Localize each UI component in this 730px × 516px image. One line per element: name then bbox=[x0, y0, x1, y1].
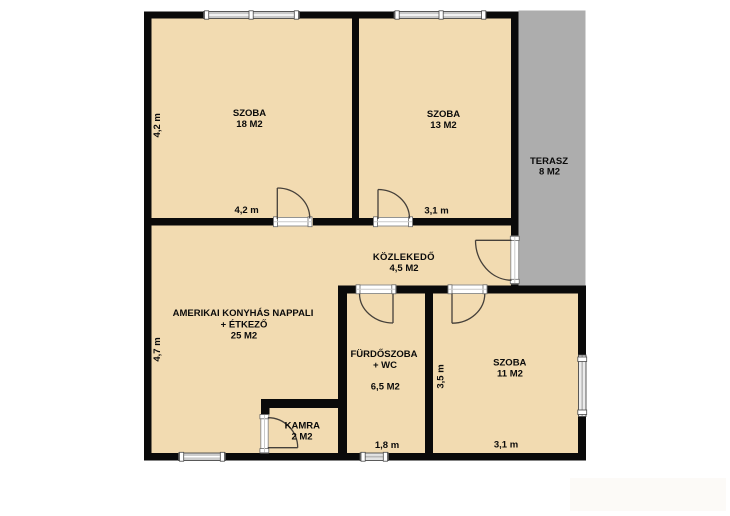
svg-text:KÖZLEKEDŐ: KÖZLEKEDŐ bbox=[373, 251, 435, 263]
svg-text:KAMRA: KAMRA bbox=[285, 421, 320, 432]
svg-text:4,2 m: 4,2 m bbox=[234, 205, 258, 216]
svg-text:SZOBA: SZOBA bbox=[427, 109, 460, 120]
svg-text:1,8 m: 1,8 m bbox=[375, 440, 399, 451]
svg-text:25 M2: 25 M2 bbox=[231, 331, 257, 342]
svg-text:FÜRDŐSZOBA: FÜRDŐSZOBA bbox=[350, 348, 417, 360]
svg-text:TERASZ: TERASZ bbox=[530, 156, 568, 167]
svg-text:3,1 m: 3,1 m bbox=[494, 440, 518, 451]
svg-text:4,2 m: 4,2 m bbox=[152, 113, 163, 137]
svg-text:4,7 m: 4,7 m bbox=[152, 337, 163, 361]
svg-text:2 M2: 2 M2 bbox=[291, 432, 312, 443]
svg-text:6,5 M2: 6,5 M2 bbox=[371, 382, 400, 393]
svg-text:13 M2: 13 M2 bbox=[430, 120, 456, 131]
svg-text:SZOBA: SZOBA bbox=[493, 358, 526, 369]
svg-text:+ ÉTKEZŐ: + ÉTKEZŐ bbox=[221, 319, 268, 331]
svg-text:SZOBA: SZOBA bbox=[233, 108, 266, 119]
svg-text:18 M2: 18 M2 bbox=[236, 119, 262, 130]
svg-text:+ WC: + WC bbox=[373, 360, 397, 371]
svg-text:4,5 M2: 4,5 M2 bbox=[389, 263, 418, 274]
svg-text:AMERIKAI KONYHÁS NAPPALI: AMERIKAI KONYHÁS NAPPALI bbox=[173, 308, 314, 319]
svg-text:3,5 m: 3,5 m bbox=[435, 364, 446, 388]
svg-text:8 M2: 8 M2 bbox=[539, 167, 560, 178]
svg-text:11 M2: 11 M2 bbox=[497, 369, 523, 380]
svg-text:3,1 m: 3,1 m bbox=[424, 206, 448, 217]
